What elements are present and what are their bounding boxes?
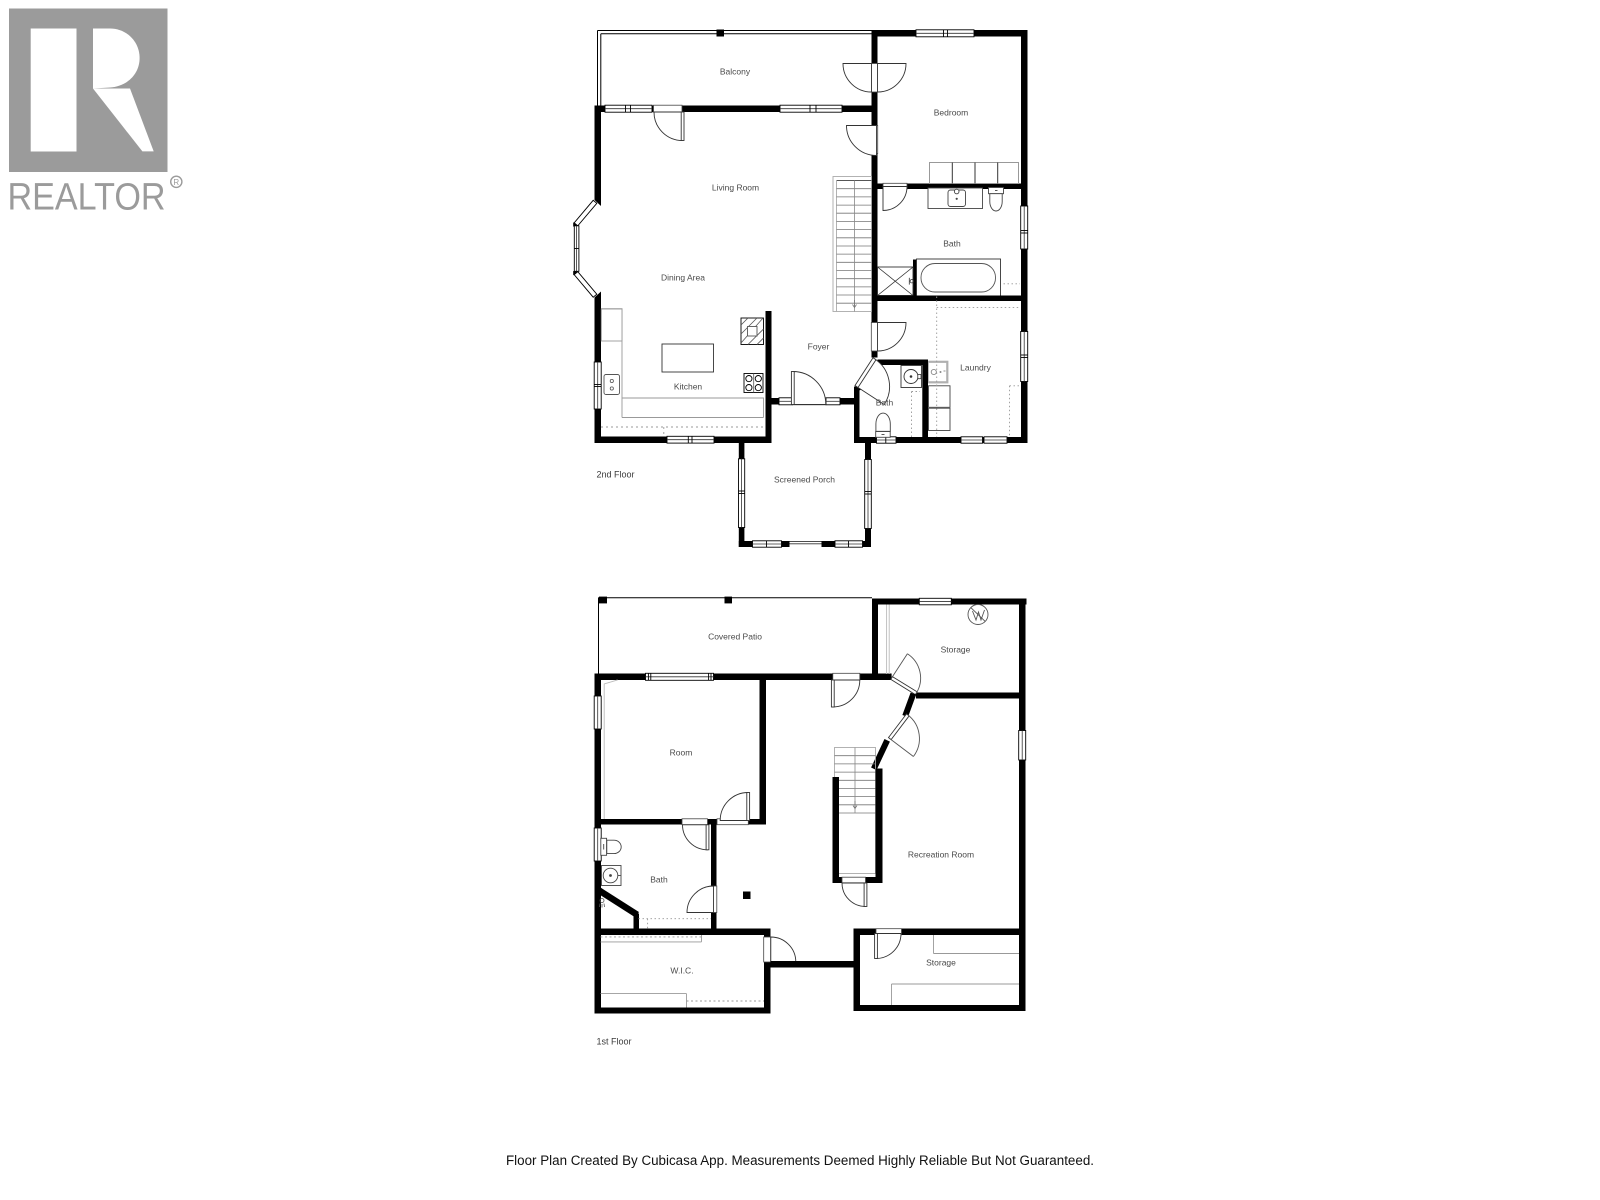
svg-text:Storage: Storage [941,645,971,655]
svg-text:Bath: Bath [650,875,668,885]
svg-text:Foyer: Foyer [808,342,830,352]
svg-text:Room: Room [670,748,693,758]
svg-text:Balcony: Balcony [720,67,751,77]
svg-text:Bedroom: Bedroom [934,108,969,118]
svg-text:Storage: Storage [926,958,956,968]
svg-text:Screened Porch: Screened Porch [774,475,835,485]
svg-text:Bath: Bath [876,398,894,408]
svg-text:Kitchen: Kitchen [674,382,703,392]
svg-text:W.I.C.: W.I.C. [670,966,693,976]
svg-text:2nd Floor: 2nd Floor [597,470,635,480]
svg-text:Bath: Bath [943,239,961,249]
svg-text:REALTOR: REALTOR [8,177,166,219]
svg-text:1st Floor: 1st Floor [597,1037,632,1047]
svg-text:Covered Patio: Covered Patio [708,632,762,642]
svg-text:Dining Area: Dining Area [661,273,705,283]
svg-text:R: R [173,178,179,187]
svg-text:Living Room: Living Room [712,183,759,193]
svg-text:Recreation Room: Recreation Room [908,850,974,860]
svg-text:Laundry: Laundry [960,363,991,373]
svg-text:Floor Plan Created By Cubicasa: Floor Plan Created By Cubicasa App. Meas… [506,1153,1094,1168]
